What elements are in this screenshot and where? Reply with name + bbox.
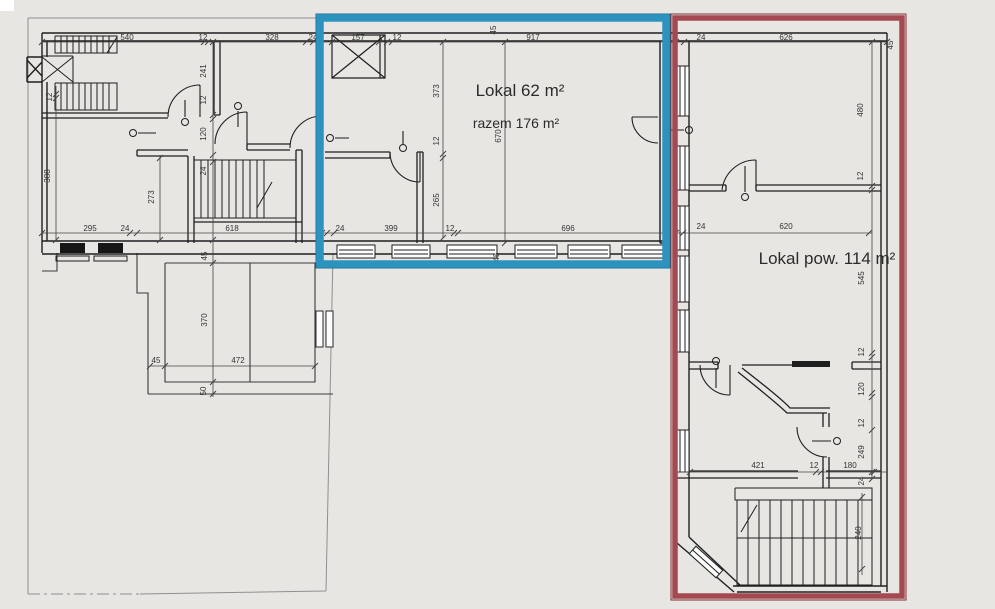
window [676, 206, 689, 250]
courtyard-window [326, 311, 333, 347]
label-lokal-62: Lokal 62 m² [476, 81, 565, 100]
corner-white-patch [0, 0, 14, 11]
courtyard-window [316, 311, 323, 347]
dimension-label: 120 [857, 382, 866, 396]
dimension-label: 12 [810, 461, 819, 470]
window [676, 66, 689, 116]
dimension-label: 12 [857, 347, 866, 356]
dimension-label: 472 [231, 356, 245, 365]
label-razem-176: razem 176 m² [473, 115, 560, 131]
dimension-label: 545 [857, 271, 866, 285]
dimension-label: 12 [199, 95, 208, 104]
window [515, 245, 557, 258]
window [676, 310, 689, 352]
window [676, 256, 689, 302]
dimension-label: 157 [351, 33, 365, 42]
dimension-label: 12 [45, 92, 54, 101]
dimension-label: 273 [147, 190, 156, 204]
dimension-label: 12 [432, 136, 441, 145]
dimension-label: 240 [854, 526, 863, 540]
dimension-label: 618 [225, 224, 239, 233]
dimension-label: 265 [432, 193, 441, 207]
dimension-label: 45 [492, 252, 501, 261]
dimension-label: 24 [697, 33, 706, 42]
dimension-label: 120 [199, 127, 208, 141]
window [392, 245, 430, 258]
window [676, 430, 689, 472]
dimension-label: 373 [432, 84, 441, 98]
dimension-label: 12 [446, 224, 455, 233]
dimension-label: 241 [199, 64, 208, 78]
dimension-label: 249 [857, 445, 866, 459]
dimension-label: 12 [856, 171, 865, 180]
dimension-label: 24 [336, 224, 345, 233]
window [337, 245, 375, 258]
dimension-label: 45 [886, 40, 895, 49]
dimension-label: 12 [199, 33, 208, 42]
dimension-label: 45 [489, 25, 498, 34]
window [447, 245, 497, 258]
window-dark [60, 243, 85, 253]
dimension-label: 45 [200, 251, 209, 260]
window [622, 245, 666, 258]
dimension-label: 388 [43, 169, 52, 183]
dimension-label: 620 [779, 222, 793, 231]
dimension-label: 480 [856, 103, 865, 117]
window [676, 146, 689, 190]
dimension-label: 24 [199, 166, 208, 175]
dimension-label: 45 [152, 356, 161, 365]
dimension-label: 12 [857, 418, 866, 427]
dimension-label: 421 [751, 461, 765, 470]
floor-plan-screenshot: 5401232824157129174524626451238824112120… [0, 0, 995, 609]
dimension-label: 328 [265, 33, 279, 42]
dimension-label: 295 [83, 224, 97, 233]
dimension-label: 24 [697, 222, 706, 231]
dimension-label: 696 [561, 224, 575, 233]
window [568, 245, 610, 258]
dimension-label: 917 [526, 33, 540, 42]
dimension-label: 12 [393, 33, 402, 42]
window-dark [98, 243, 123, 253]
dimension-label: 24 [121, 224, 130, 233]
dimension-label: 626 [779, 33, 793, 42]
thick-wall-bar [792, 361, 830, 367]
dimension-label: 370 [200, 313, 209, 327]
dimension-label: 399 [384, 224, 398, 233]
label-lokal-114: Lokal pow. 114 m² [759, 249, 896, 268]
floor-plan-canvas: 5401232824157129174524626451238824112120… [0, 0, 995, 609]
dimension-label: 180 [843, 461, 857, 470]
dimension-label: 24 [857, 476, 866, 485]
dimension-label: 50 [199, 386, 208, 395]
dimension-label: 540 [120, 33, 134, 42]
